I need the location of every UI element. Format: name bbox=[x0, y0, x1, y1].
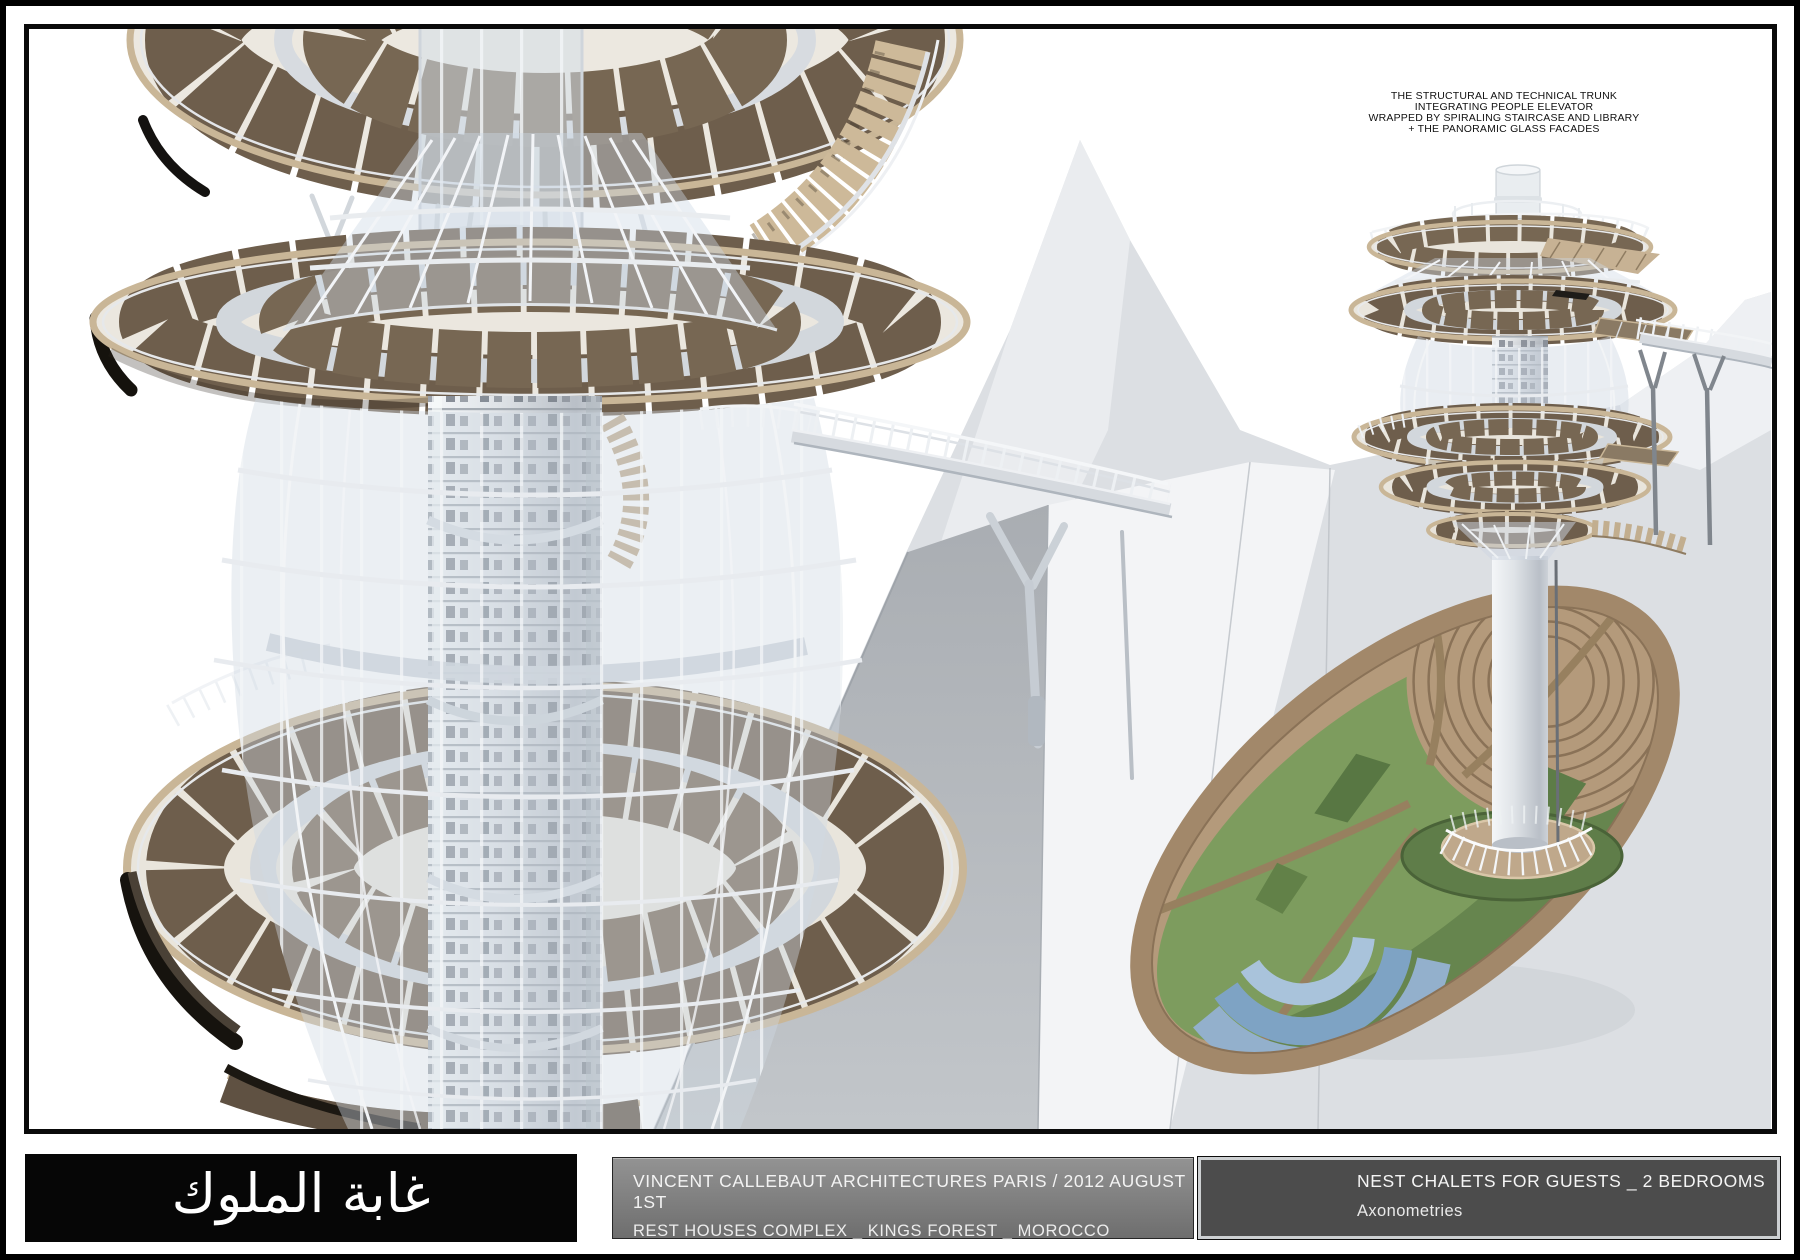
project-location-line: REST HOUSES COMPLEX _ KINGS FOREST _ MOR… bbox=[633, 1222, 1193, 1241]
annotation-note: THE STRUCTURAL AND TECHNICAL TRUNK INTEG… bbox=[1312, 91, 1696, 135]
detail-glass-barrel bbox=[214, 398, 862, 1129]
mid-deck-platform bbox=[1354, 408, 1678, 466]
annotation-line: + THE PANORAMIC GLASS FACADES bbox=[1312, 124, 1696, 135]
sheet-title-line: NEST CHALETS FOR GUESTS _ 2 BEDROOMS bbox=[1357, 1171, 1777, 1192]
sheet-subtitle-line: Axonometries bbox=[1357, 1202, 1777, 1221]
studio-credit-line: VINCENT CALLEBAUT ARCHITECTURES PARIS / … bbox=[633, 1171, 1193, 1213]
presentation-sheet: THE STRUCTURAL AND TECHNICAL TRUNK INTEG… bbox=[0, 0, 1800, 1260]
project-title-arabic: غابة الملوك bbox=[172, 1150, 431, 1238]
sheet-title-box: NEST CHALETS FOR GUESTS _ 2 BEDROOMS Axo… bbox=[1198, 1157, 1780, 1239]
firm-credit-box: VINCENT CALLEBAUT ARCHITECTURES PARIS / … bbox=[612, 1157, 1194, 1239]
lower-deck-platform bbox=[1381, 462, 1649, 512]
axonometry-artwork bbox=[29, 29, 1772, 1129]
project-title-arabic-box: غابة الملوك bbox=[25, 1154, 577, 1242]
sheet-canvas: THE STRUCTURAL AND TECHNICAL TRUNK INTEG… bbox=[24, 24, 1777, 1134]
